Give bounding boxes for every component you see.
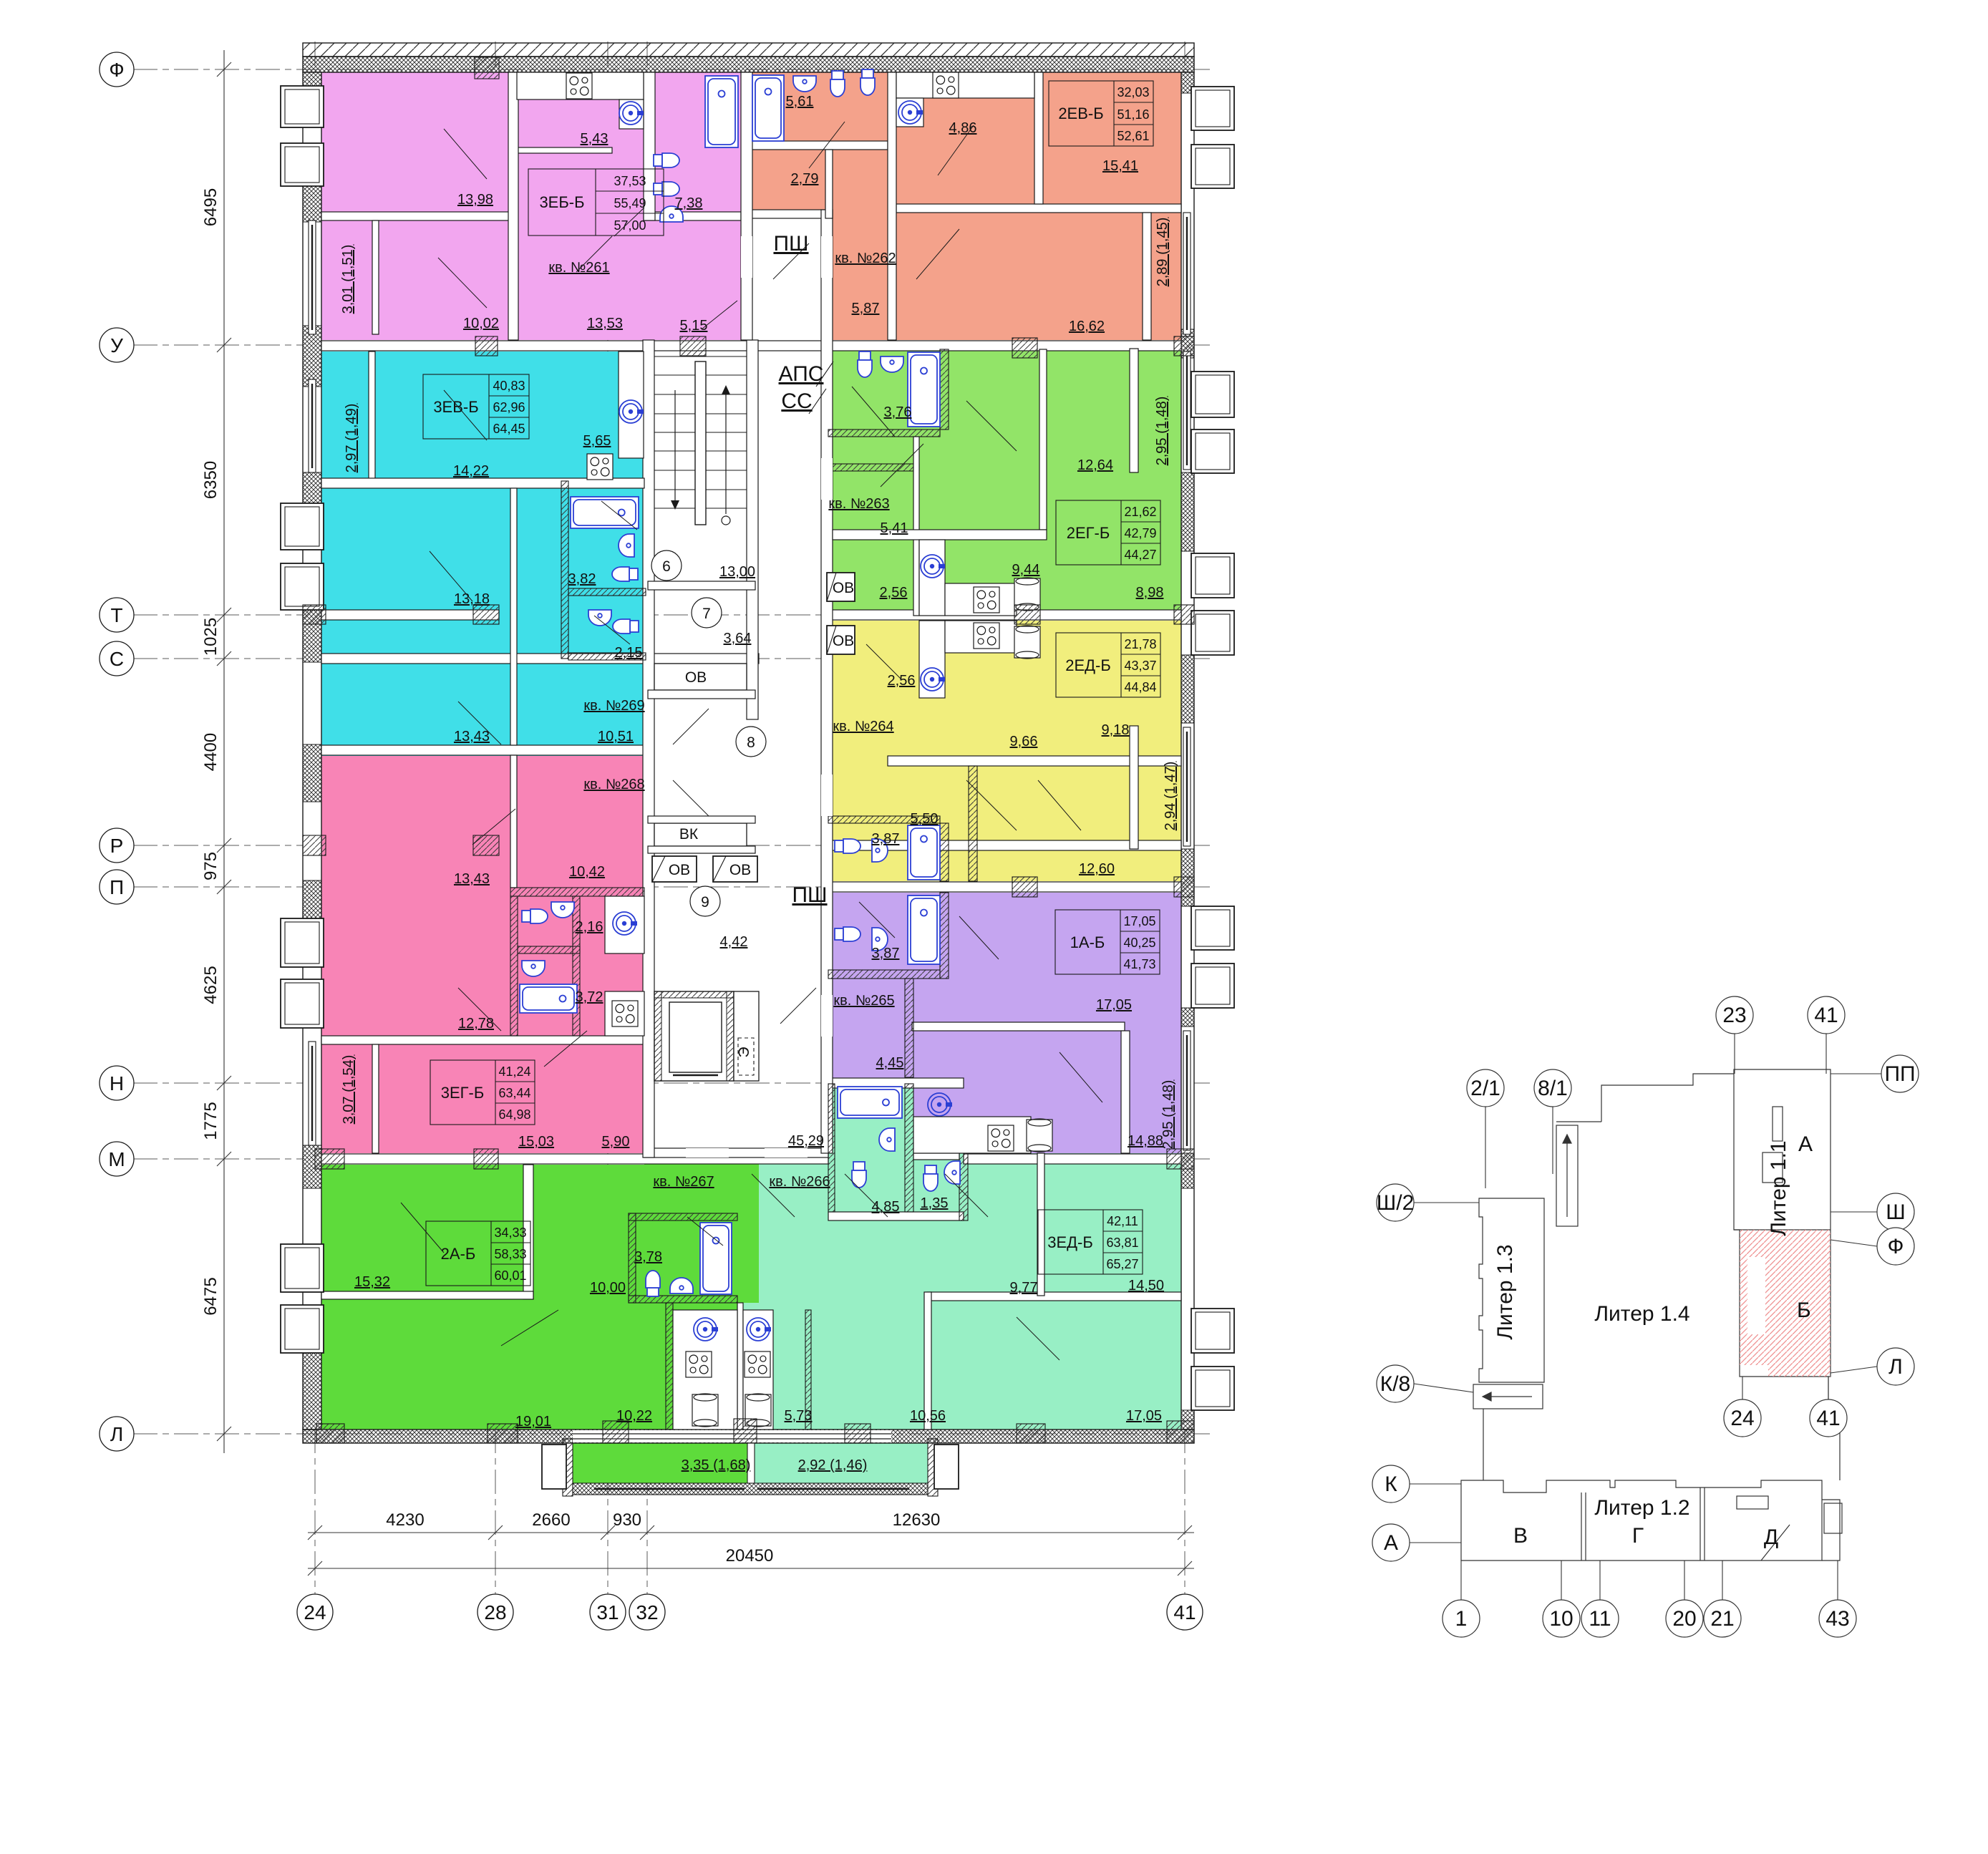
svg-text:43: 43 xyxy=(1825,1607,1849,1631)
svg-text:15,03: 15,03 xyxy=(518,1134,554,1150)
svg-text:ПП: ПП xyxy=(1884,1062,1915,1086)
svg-text:5,61: 5,61 xyxy=(786,94,814,110)
svg-text:3,87: 3,87 xyxy=(872,946,900,961)
svg-text:3ЕД-Б: 3ЕД-Б xyxy=(1047,1233,1093,1251)
svg-text:64,98: 64,98 xyxy=(498,1107,530,1122)
svg-text:4230: 4230 xyxy=(386,1510,424,1530)
svg-text:975: 975 xyxy=(201,852,220,880)
svg-text:2660: 2660 xyxy=(532,1510,570,1530)
svg-text:2ЕГ-Б: 2ЕГ-Б xyxy=(1067,524,1110,542)
svg-text:2,89 (1,45): 2,89 (1,45) xyxy=(1155,218,1170,287)
svg-text:62,96: 62,96 xyxy=(493,400,525,414)
svg-text:37,53: 37,53 xyxy=(614,174,646,188)
svg-text:5,90: 5,90 xyxy=(602,1134,630,1150)
svg-text:8: 8 xyxy=(747,734,755,751)
svg-text:3,35 (1,68): 3,35 (1,68) xyxy=(682,1457,751,1473)
svg-text:Т: Т xyxy=(110,604,122,626)
svg-text:1775: 1775 xyxy=(201,1102,220,1140)
svg-text:9,77: 9,77 xyxy=(1010,1280,1038,1296)
svg-text:63,44: 63,44 xyxy=(498,1086,530,1100)
svg-text:ВК: ВК xyxy=(679,826,699,843)
svg-text:6475: 6475 xyxy=(201,1277,220,1315)
svg-text:4,86: 4,86 xyxy=(949,120,977,136)
svg-text:К: К xyxy=(1385,1472,1397,1496)
svg-text:52,61: 52,61 xyxy=(1117,129,1149,143)
svg-text:12630: 12630 xyxy=(893,1510,941,1530)
svg-text:4,85: 4,85 xyxy=(872,1199,900,1215)
svg-text:У: У xyxy=(110,334,123,356)
svg-text:А: А xyxy=(1384,1531,1398,1555)
svg-text:2,15: 2,15 xyxy=(615,645,643,661)
svg-text:24: 24 xyxy=(1730,1407,1754,1430)
svg-text:24: 24 xyxy=(304,1601,326,1624)
svg-text:6495: 6495 xyxy=(201,188,220,226)
svg-text:Литер 1.1: Литер 1.1 xyxy=(1767,1140,1790,1236)
svg-text:ОВ: ОВ xyxy=(833,633,854,649)
svg-text:13,98: 13,98 xyxy=(457,192,493,208)
svg-text:17,05: 17,05 xyxy=(1126,1408,1162,1424)
svg-text:5,87: 5,87 xyxy=(852,301,880,316)
svg-text:32,03: 32,03 xyxy=(1117,85,1149,100)
svg-text:ОВ: ОВ xyxy=(729,862,751,878)
svg-text:3,87: 3,87 xyxy=(872,831,900,847)
svg-text:2ЕВ-Б: 2ЕВ-Б xyxy=(1058,105,1103,122)
svg-text:2,56: 2,56 xyxy=(888,673,916,689)
svg-text:10: 10 xyxy=(1549,1607,1573,1631)
svg-text:41,73: 41,73 xyxy=(1123,957,1155,971)
svg-text:1,35: 1,35 xyxy=(921,1195,949,1211)
svg-text:5,43: 5,43 xyxy=(581,131,608,147)
svg-text:Л: Л xyxy=(110,1423,123,1445)
svg-text:15,32: 15,32 xyxy=(354,1274,390,1290)
svg-text:41: 41 xyxy=(1816,1407,1840,1430)
svg-text:Б: Б xyxy=(1797,1299,1811,1322)
svg-text:9,18: 9,18 xyxy=(1102,722,1130,738)
svg-text:3,64: 3,64 xyxy=(724,631,752,646)
svg-text:12,60: 12,60 xyxy=(1079,861,1115,877)
svg-text:63,81: 63,81 xyxy=(1106,1236,1138,1250)
svg-text:13,18: 13,18 xyxy=(454,591,490,607)
svg-text:20450: 20450 xyxy=(726,1546,774,1566)
svg-text:45,29: 45,29 xyxy=(788,1133,824,1149)
svg-text:А: А xyxy=(1798,1132,1813,1156)
svg-text:55,49: 55,49 xyxy=(614,196,646,210)
svg-text:2,95 (1,48): 2,95 (1,48) xyxy=(1154,397,1170,466)
svg-text:1025: 1025 xyxy=(201,618,220,656)
svg-text:СС: СС xyxy=(781,389,812,413)
svg-text:64,45: 64,45 xyxy=(493,422,525,436)
svg-text:ПШ: ПШ xyxy=(792,883,827,907)
svg-text:4625: 4625 xyxy=(201,966,220,1004)
svg-text:13,00: 13,00 xyxy=(719,564,755,580)
svg-text:Р: Р xyxy=(110,835,124,857)
svg-text:20: 20 xyxy=(1672,1607,1696,1631)
svg-text:60,01: 60,01 xyxy=(494,1268,526,1283)
svg-text:28: 28 xyxy=(484,1601,506,1624)
svg-text:К/8: К/8 xyxy=(1380,1372,1411,1396)
svg-text:34,33: 34,33 xyxy=(494,1226,526,1240)
svg-text:5,41: 5,41 xyxy=(881,520,908,536)
svg-text:23: 23 xyxy=(1722,1004,1746,1027)
svg-text:11: 11 xyxy=(1589,1607,1611,1631)
svg-text:3ЕГ-Б: 3ЕГ-Б xyxy=(441,1084,485,1102)
svg-text:2ЕД-Б: 2ЕД-Б xyxy=(1065,656,1111,674)
svg-text:2,97 (1,49): 2,97 (1,49) xyxy=(344,404,359,473)
svg-text:кв. №267: кв. №267 xyxy=(653,1174,714,1190)
svg-text:ОВ: ОВ xyxy=(669,862,690,878)
svg-text:М: М xyxy=(108,1148,125,1170)
svg-text:43,37: 43,37 xyxy=(1124,659,1156,673)
svg-text:5,15: 5,15 xyxy=(680,318,708,334)
svg-text:16,62: 16,62 xyxy=(1069,319,1105,334)
svg-text:5,65: 5,65 xyxy=(583,433,611,449)
svg-text:2,92 (1,46): 2,92 (1,46) xyxy=(798,1457,868,1473)
svg-text:6: 6 xyxy=(662,558,671,575)
svg-text:2,56: 2,56 xyxy=(880,585,908,601)
svg-text:8/1: 8/1 xyxy=(1538,1077,1568,1100)
svg-text:Ш: Ш xyxy=(1886,1200,1906,1224)
svg-text:9,66: 9,66 xyxy=(1010,734,1038,749)
svg-text:Литер 1.2: Литер 1.2 xyxy=(1594,1496,1689,1520)
svg-text:58,33: 58,33 xyxy=(494,1247,526,1261)
svg-text:21: 21 xyxy=(1710,1607,1734,1631)
svg-text:7,38: 7,38 xyxy=(675,195,703,211)
svg-text:10,02: 10,02 xyxy=(463,316,499,331)
svg-text:5,50: 5,50 xyxy=(911,811,939,827)
svg-text:44,27: 44,27 xyxy=(1124,548,1156,562)
svg-text:7: 7 xyxy=(702,606,711,622)
svg-text:Ф: Ф xyxy=(1888,1235,1904,1258)
svg-text:2/1: 2/1 xyxy=(1470,1077,1500,1100)
svg-text:44,84: 44,84 xyxy=(1124,680,1156,694)
svg-text:32: 32 xyxy=(636,1601,658,1624)
svg-text:Н: Н xyxy=(110,1072,124,1095)
svg-text:5,73: 5,73 xyxy=(785,1408,813,1424)
svg-text:АПС: АПС xyxy=(779,362,824,386)
svg-text:2А-Б: 2А-Б xyxy=(441,1245,476,1263)
svg-text:кв. №264: кв. №264 xyxy=(833,719,893,734)
svg-text:14,50: 14,50 xyxy=(1128,1278,1164,1294)
svg-text:С: С xyxy=(110,648,124,670)
svg-text:4,42: 4,42 xyxy=(720,934,748,950)
svg-text:9: 9 xyxy=(701,894,709,911)
svg-text:21,62: 21,62 xyxy=(1124,505,1156,519)
svg-text:кв. №263: кв. №263 xyxy=(828,496,889,512)
svg-text:ОВ: ОВ xyxy=(833,580,854,596)
svg-text:Л: Л xyxy=(1888,1355,1903,1379)
svg-text:Э: Э xyxy=(736,1047,752,1057)
svg-text:кв. №268: кв. №268 xyxy=(583,777,644,792)
svg-text:6350: 6350 xyxy=(201,461,220,499)
svg-text:кв. №265: кв. №265 xyxy=(833,993,894,1009)
svg-text:Г: Г xyxy=(1632,1524,1644,1548)
svg-text:3,01 (1,51): 3,01 (1,51) xyxy=(340,245,356,314)
svg-text:15,41: 15,41 xyxy=(1102,158,1138,174)
svg-text:3,82: 3,82 xyxy=(568,571,596,587)
svg-text:31: 31 xyxy=(596,1601,619,1624)
svg-text:кв. №269: кв. №269 xyxy=(583,698,644,714)
svg-text:кв. №266: кв. №266 xyxy=(769,1174,830,1190)
svg-text:41: 41 xyxy=(1814,1004,1838,1027)
svg-text:1: 1 xyxy=(1455,1607,1468,1631)
svg-text:10,56: 10,56 xyxy=(910,1408,946,1424)
svg-text:42,79: 42,79 xyxy=(1124,526,1156,540)
svg-text:12,64: 12,64 xyxy=(1077,457,1113,473)
svg-text:65,27: 65,27 xyxy=(1106,1257,1138,1271)
svg-text:кв. №262: кв. №262 xyxy=(835,251,896,266)
svg-text:Д: Д xyxy=(1764,1525,1778,1549)
svg-text:ОВ: ОВ xyxy=(685,669,707,686)
svg-text:2,94 (1,47): 2,94 (1,47) xyxy=(1163,762,1178,831)
svg-text:41,24: 41,24 xyxy=(498,1064,530,1079)
svg-text:8,98: 8,98 xyxy=(1136,585,1164,601)
svg-text:19,01: 19,01 xyxy=(515,1414,551,1430)
svg-text:40,83: 40,83 xyxy=(493,379,525,393)
svg-text:41: 41 xyxy=(1173,1601,1196,1624)
svg-text:В: В xyxy=(1513,1524,1528,1548)
svg-text:14,88: 14,88 xyxy=(1128,1133,1163,1149)
svg-text:П: П xyxy=(110,876,124,898)
svg-text:10,00: 10,00 xyxy=(590,1280,626,1296)
svg-text:14,22: 14,22 xyxy=(453,463,489,479)
svg-text:10,22: 10,22 xyxy=(616,1408,652,1424)
svg-text:ПШ: ПШ xyxy=(773,232,808,256)
svg-text:3ЕБ-Б: 3ЕБ-Б xyxy=(539,193,584,211)
svg-text:930: 930 xyxy=(613,1510,641,1530)
svg-text:3,78: 3,78 xyxy=(634,1249,662,1265)
svg-text:42,11: 42,11 xyxy=(1107,1214,1138,1228)
svg-text:1А-Б: 1А-Б xyxy=(1070,933,1105,951)
svg-text:3,07 (1,54): 3,07 (1,54) xyxy=(341,1055,357,1125)
svg-text:13,43: 13,43 xyxy=(454,729,490,744)
svg-text:10,51: 10,51 xyxy=(598,729,634,744)
svg-text:21,78: 21,78 xyxy=(1124,637,1156,651)
svg-text:Ш/2: Ш/2 xyxy=(1377,1191,1415,1215)
svg-text:4,45: 4,45 xyxy=(876,1055,904,1071)
svg-text:40,25: 40,25 xyxy=(1123,936,1155,950)
svg-text:2,16: 2,16 xyxy=(576,919,603,935)
svg-text:51,16: 51,16 xyxy=(1117,107,1149,122)
svg-text:17,05: 17,05 xyxy=(1123,914,1155,928)
svg-text:3ЕВ-Б: 3ЕВ-Б xyxy=(433,398,478,416)
svg-text:3,72: 3,72 xyxy=(576,989,603,1005)
svg-text:10,42: 10,42 xyxy=(569,864,605,880)
svg-text:кв. №261: кв. №261 xyxy=(548,260,609,276)
svg-text:Литер 1.3: Литер 1.3 xyxy=(1493,1244,1517,1339)
svg-text:13,43: 13,43 xyxy=(454,871,490,887)
svg-text:2,95 (1,48): 2,95 (1,48) xyxy=(1160,1080,1176,1150)
svg-text:2,79: 2,79 xyxy=(791,171,819,187)
svg-text:9,44: 9,44 xyxy=(1012,562,1040,578)
svg-text:Ф: Ф xyxy=(109,59,124,81)
svg-text:3,76: 3,76 xyxy=(884,404,912,420)
svg-text:13,53: 13,53 xyxy=(587,316,623,331)
svg-text:57,00: 57,00 xyxy=(614,218,646,233)
svg-text:17,05: 17,05 xyxy=(1096,997,1132,1013)
svg-text:4400: 4400 xyxy=(201,733,220,771)
svg-text:Литер 1.4: Литер 1.4 xyxy=(1594,1302,1689,1326)
